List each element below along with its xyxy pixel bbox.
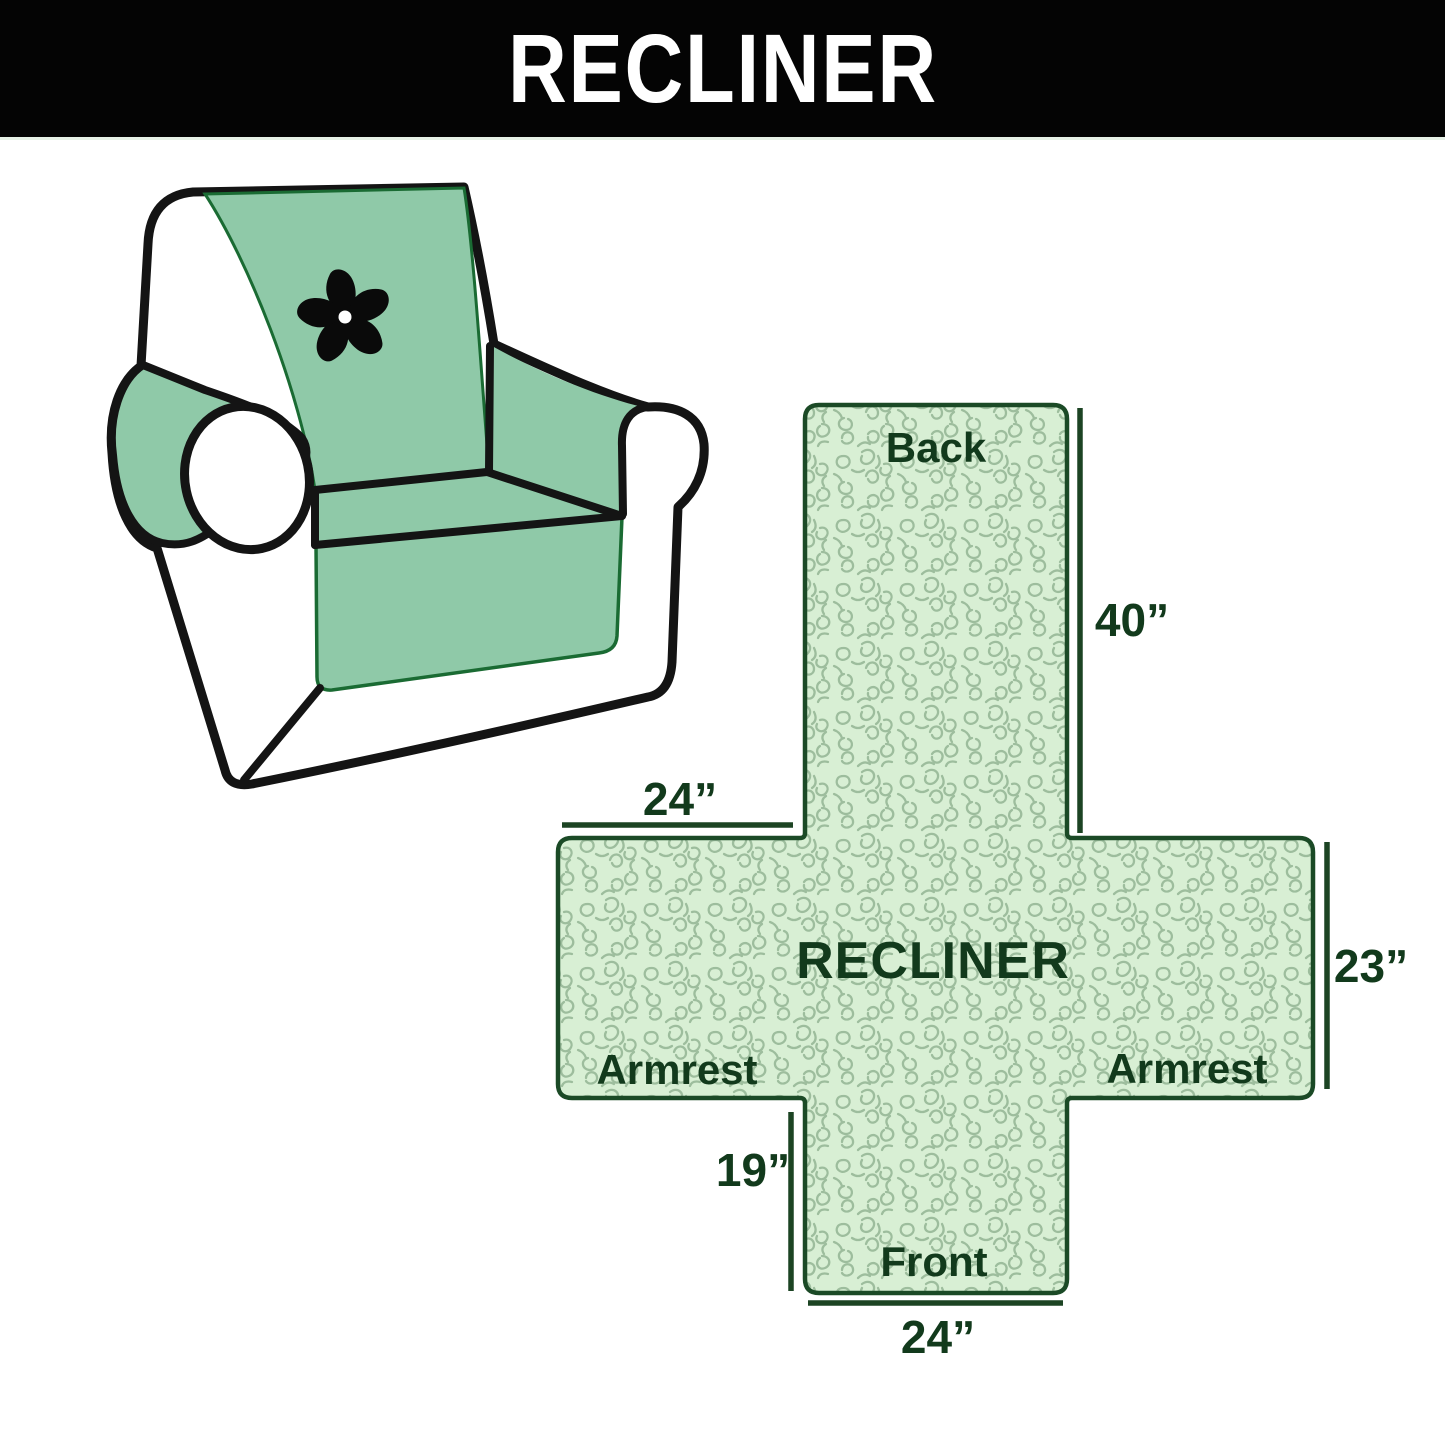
chair-illustration: [111, 187, 704, 785]
cross-center-label: RECLINER: [796, 935, 1070, 987]
front-drop-measurement: 19”: [716, 1147, 790, 1193]
armrest-left-label: Armrest: [596, 1049, 757, 1091]
bottom-width-measurement: 24”: [901, 1314, 975, 1360]
armrest-right-label: Armrest: [1106, 1048, 1267, 1090]
back-length-measurement: 40”: [1095, 597, 1169, 643]
top-width-measurement: 24”: [643, 776, 717, 822]
front-section-label: Front: [880, 1241, 987, 1283]
recliner-cover-infographic: RECLINER: [0, 0, 1445, 1445]
back-section-label: Back: [886, 427, 986, 469]
side-height-measurement: 23”: [1334, 943, 1408, 989]
diagram-canvas: [0, 0, 1445, 1445]
